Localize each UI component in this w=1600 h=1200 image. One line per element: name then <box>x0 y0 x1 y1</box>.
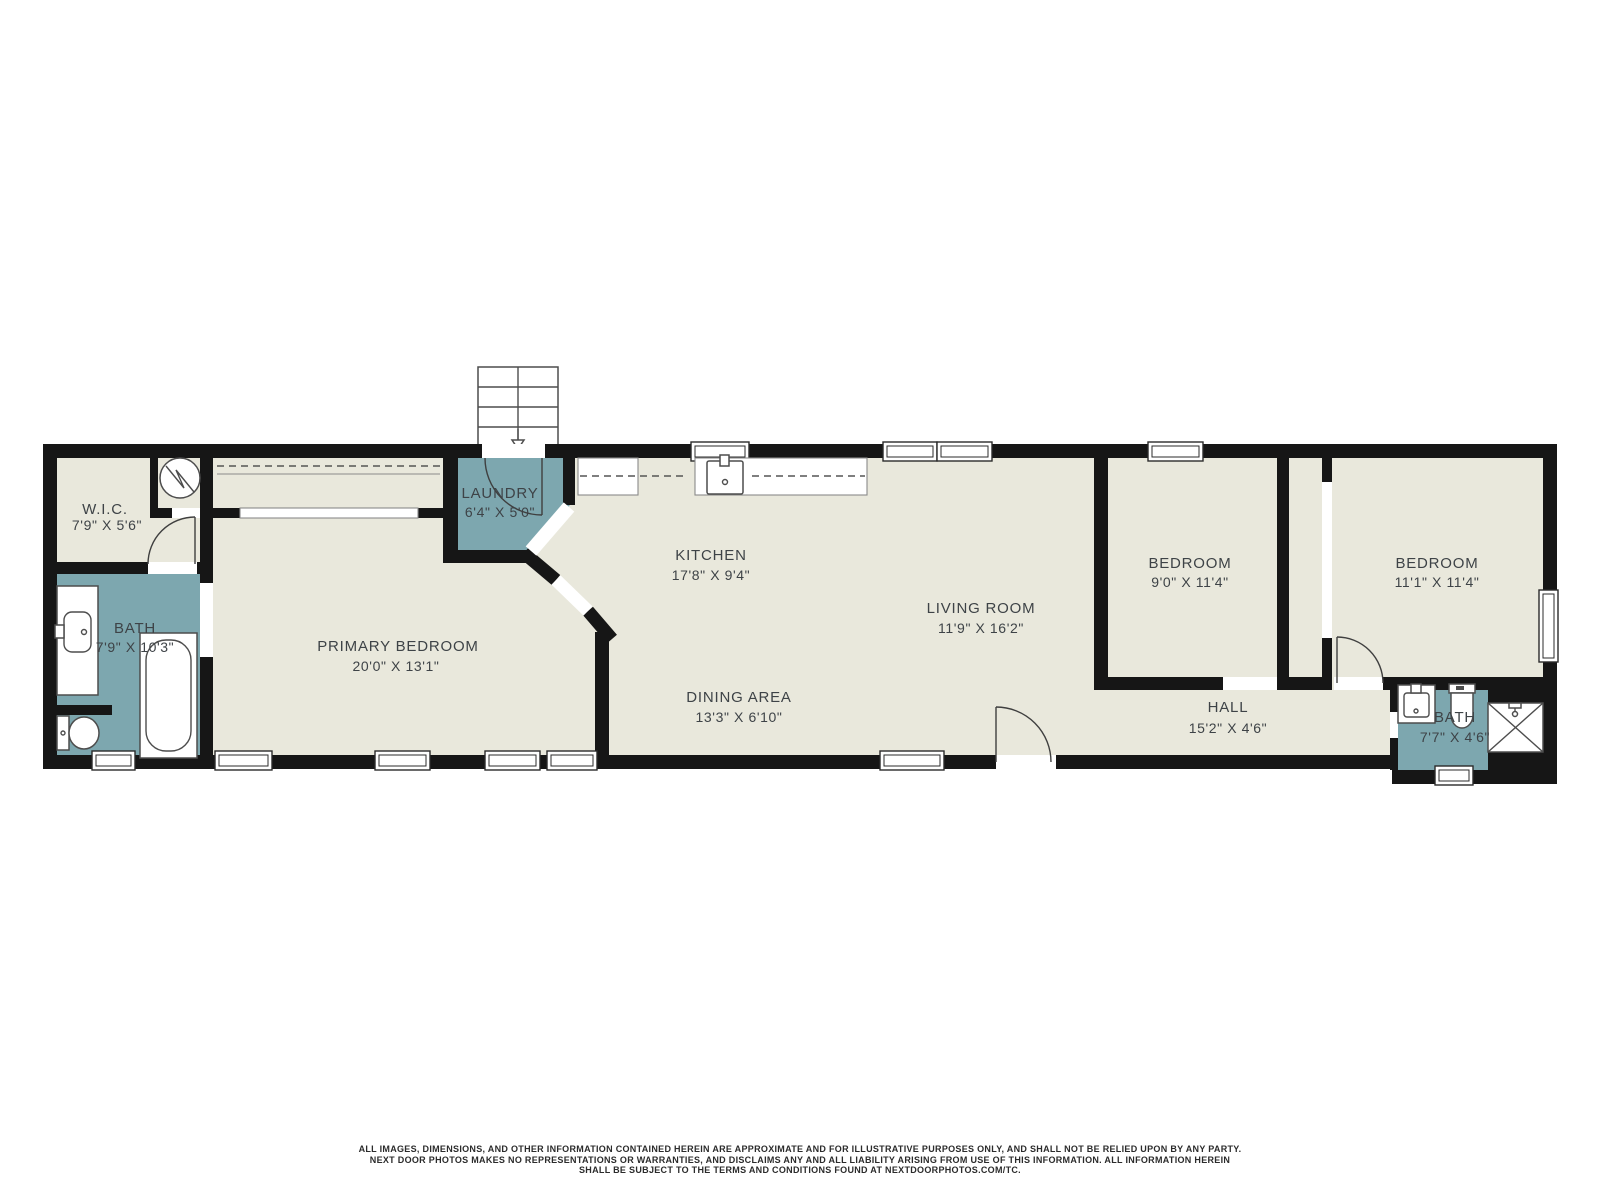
primary-closet-opening <box>240 508 418 518</box>
svg-text:DINING AREA: DINING AREA <box>686 689 792 706</box>
window <box>485 751 540 770</box>
bath-left-door-opening <box>200 583 213 657</box>
svg-text:7'7" X 4'6": 7'7" X 4'6" <box>1420 729 1490 745</box>
toilet-icon <box>57 716 99 750</box>
disclaimer-line-3: SHALL BE SUBJECT TO THE TERMS AND CONDIT… <box>0 1165 1600 1176</box>
svg-text:BATH: BATH <box>1434 709 1476 726</box>
bedroom-2-closet-opening <box>1322 482 1332 638</box>
floor-plan-page: W.I.C. 7'9" X 5'6" BATH 7'9" X 10'3" PRI… <box>0 0 1600 1200</box>
svg-text:LIVING ROOM: LIVING ROOM <box>927 600 1036 617</box>
vanity-sink-icon <box>1398 684 1435 723</box>
bedroom-2-door-opening <box>1334 677 1383 690</box>
window <box>92 751 135 770</box>
svg-text:9'0" X 11'4": 9'0" X 11'4" <box>1151 574 1229 590</box>
svg-text:17'8" X 9'4": 17'8" X 9'4" <box>672 567 751 583</box>
floor-plan: W.I.C. 7'9" X 5'6" BATH 7'9" X 10'3" PRI… <box>0 0 1600 1200</box>
svg-text:6'4" X 5'0": 6'4" X 5'0" <box>465 504 535 520</box>
window <box>215 751 272 770</box>
window <box>547 751 597 770</box>
svg-text:13'3" X 6'10": 13'3" X 6'10" <box>696 709 783 725</box>
bath-right-door-opening <box>1390 712 1398 738</box>
living-room-entry-opening <box>996 755 1056 769</box>
window <box>880 751 944 770</box>
window <box>883 442 937 461</box>
window <box>375 751 430 770</box>
svg-text:7'9" X 5'6": 7'9" X 5'6" <box>72 517 142 533</box>
svg-text:LAUNDRY: LAUNDRY <box>461 485 538 502</box>
svg-text:KITCHEN: KITCHEN <box>675 547 746 564</box>
svg-text:11'9" X 16'2": 11'9" X 16'2" <box>938 620 1024 636</box>
disclaimer-line-2: NEXT DOOR PHOTOS MAKES NO REPRESENTATION… <box>0 1155 1600 1166</box>
shower-icon <box>1488 703 1543 752</box>
window <box>1148 442 1203 461</box>
kitchen-counters <box>578 455 867 495</box>
svg-text:15'2" X 4'6": 15'2" X 4'6" <box>1189 720 1268 736</box>
svg-text:BATH: BATH <box>114 620 156 637</box>
svg-text:20'0" X 13'1": 20'0" X 13'1" <box>353 658 440 674</box>
svg-text:HALL: HALL <box>1208 699 1249 716</box>
window <box>1539 590 1558 662</box>
window <box>937 442 992 461</box>
svg-text:7'9" X 10'3": 7'9" X 10'3" <box>96 639 175 655</box>
vanity-sink-icon <box>55 586 98 695</box>
bedroom-1-door-opening <box>1223 677 1277 690</box>
laundry-entry-opening <box>482 444 545 458</box>
svg-text:BEDROOM: BEDROOM <box>1395 555 1478 572</box>
water-heater-closet-opening <box>172 508 200 518</box>
water-heater-icon <box>160 458 200 498</box>
sink-icon <box>707 455 743 494</box>
window <box>1435 766 1473 785</box>
stairs-down-icon <box>478 367 558 449</box>
svg-text:W.I.C.: W.I.C. <box>82 501 128 518</box>
svg-text:11'1" X 11'4": 11'1" X 11'4" <box>1395 574 1480 590</box>
wic-door-opening <box>148 562 197 574</box>
svg-text:BEDROOM: BEDROOM <box>1148 555 1231 572</box>
disclaimer: ALL IMAGES, DIMENSIONS, AND OTHER INFORM… <box>0 1144 1600 1176</box>
svg-text:PRIMARY BEDROOM: PRIMARY BEDROOM <box>317 638 478 655</box>
disclaimer-line-1: ALL IMAGES, DIMENSIONS, AND OTHER INFORM… <box>0 1144 1600 1155</box>
